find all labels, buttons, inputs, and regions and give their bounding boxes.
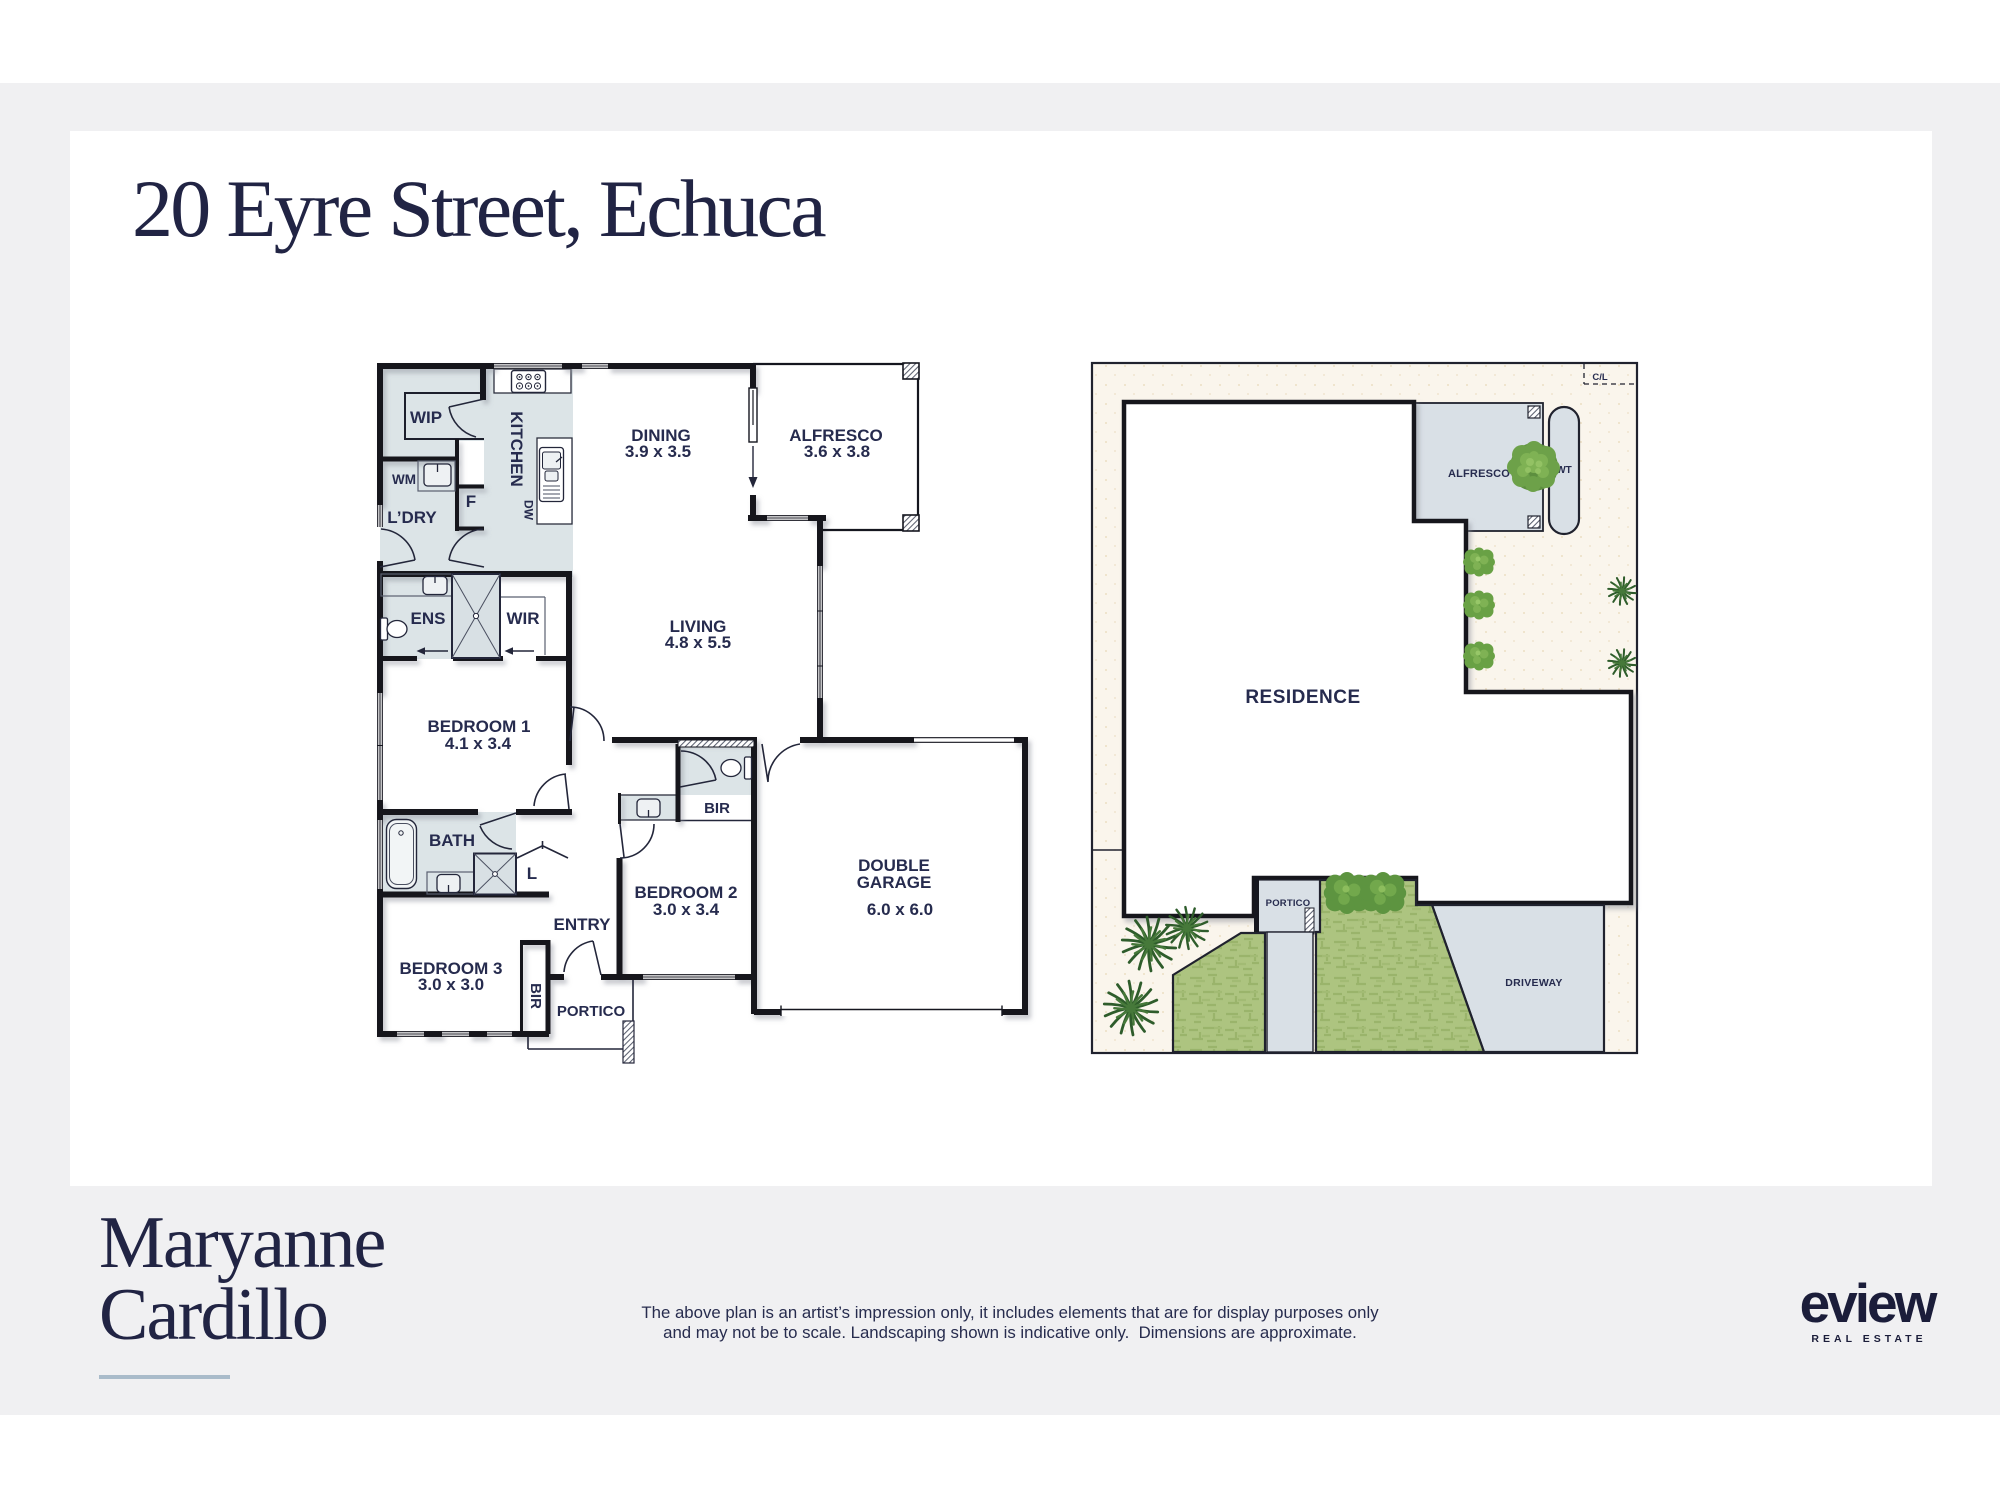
svg-text:KITCHEN: KITCHEN <box>507 411 526 487</box>
svg-text:PORTICO: PORTICO <box>557 1003 626 1020</box>
svg-text:3.9 x 3.5: 3.9 x 3.5 <box>625 442 691 461</box>
svg-text:ENS: ENS <box>411 609 446 628</box>
svg-text:BIR: BIR <box>704 800 730 817</box>
svg-text:3.0 x 3.0: 3.0 x 3.0 <box>418 975 484 994</box>
svg-text:GARAGE: GARAGE <box>857 873 932 892</box>
svg-text:C/L: C/L <box>1592 372 1608 383</box>
svg-text:WIR: WIR <box>506 609 539 628</box>
svg-text:PORTICO: PORTICO <box>1266 898 1311 909</box>
svg-text:F: F <box>466 492 476 511</box>
svg-text:4.1 x 3.4: 4.1 x 3.4 <box>445 734 512 753</box>
svg-text:DW: DW <box>522 500 536 521</box>
svg-text:L: L <box>527 864 537 883</box>
svg-text:ALFRESCO: ALFRESCO <box>1448 468 1510 480</box>
svg-text:6.0 x 6.0: 6.0 x 6.0 <box>867 900 933 919</box>
svg-text:ENTRY: ENTRY <box>554 915 612 934</box>
svg-text:BATH: BATH <box>429 831 475 850</box>
svg-text:L’DRY: L’DRY <box>387 508 437 527</box>
svg-text:4.8 x 5.5: 4.8 x 5.5 <box>665 633 731 652</box>
svg-text:DRIVEWAY: DRIVEWAY <box>1505 977 1562 989</box>
svg-text:WIP: WIP <box>410 408 442 427</box>
svg-text:BIR: BIR <box>527 983 544 1009</box>
svg-text:WM: WM <box>392 472 416 487</box>
svg-text:3.0 x 3.4: 3.0 x 3.4 <box>653 900 720 919</box>
svg-text:RESIDENCE: RESIDENCE <box>1245 687 1360 708</box>
svg-text:3.6 x 3.8: 3.6 x 3.8 <box>804 442 870 461</box>
